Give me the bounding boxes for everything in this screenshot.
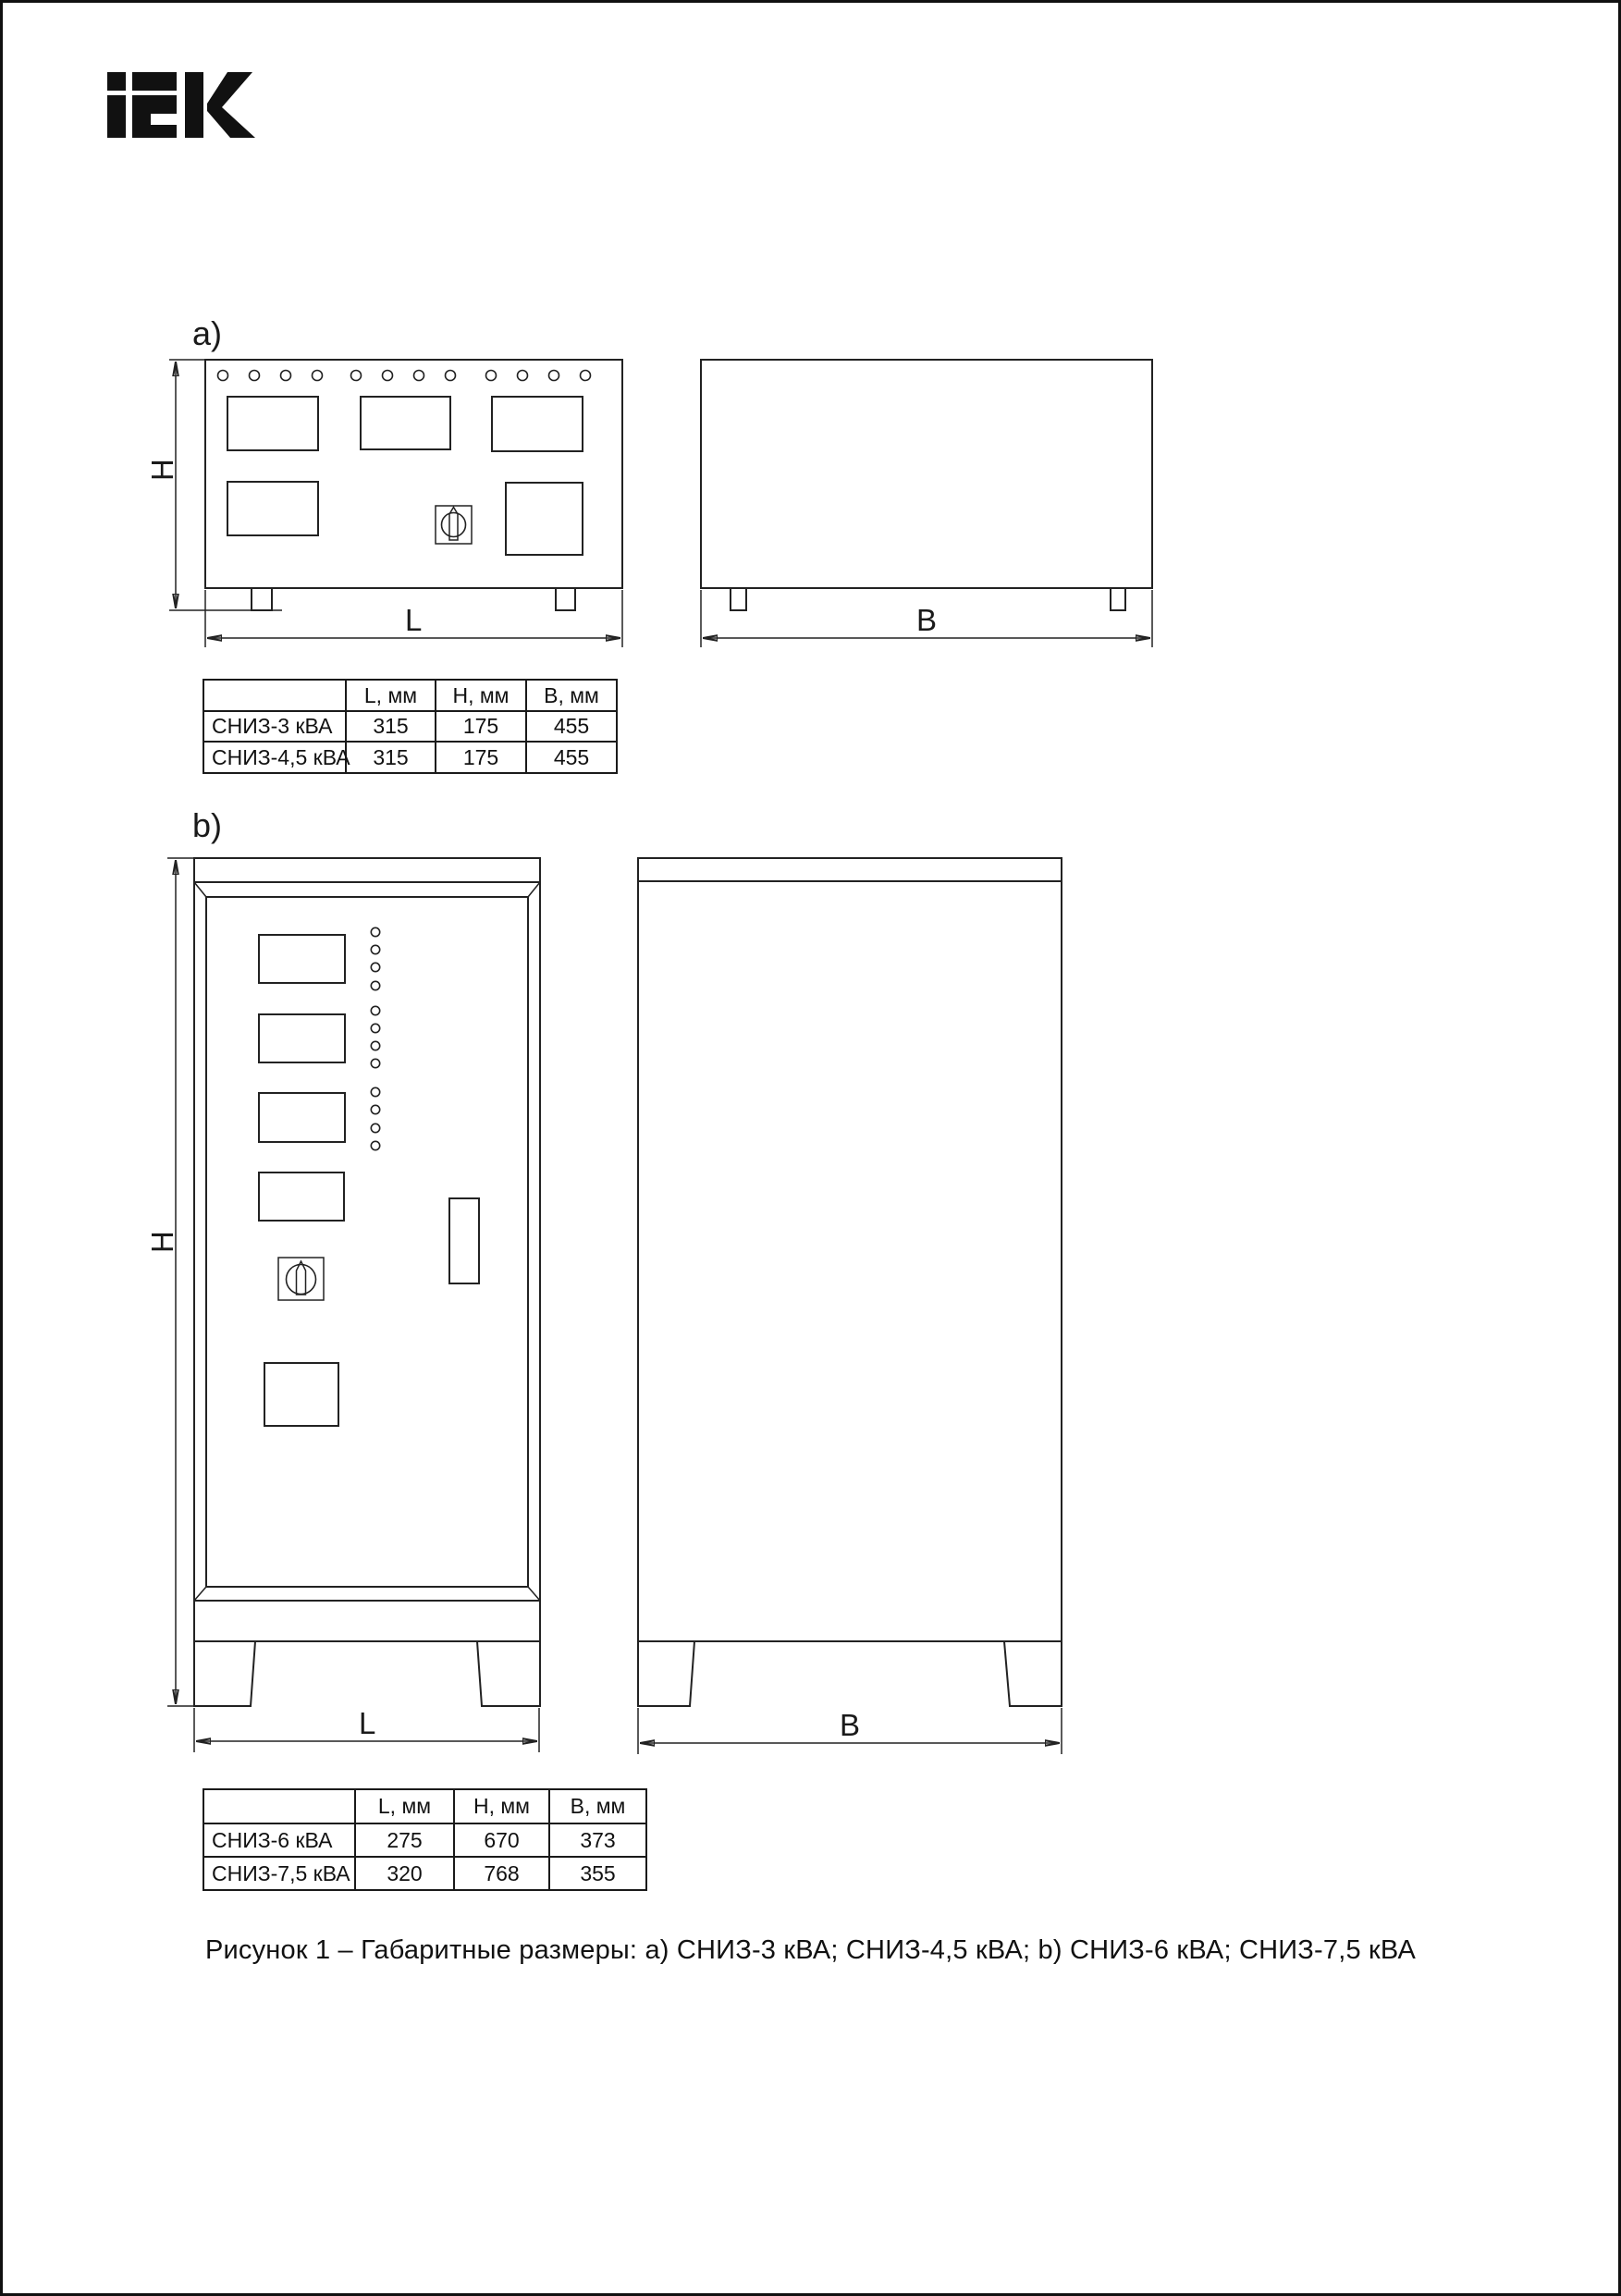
bevel-line [528, 1587, 540, 1601]
ventilation-holes [218, 371, 591, 381]
document-page: a) [0, 0, 1621, 2296]
logo-i-stem [107, 95, 126, 138]
vent-hole [414, 371, 424, 381]
iek-logo [107, 72, 278, 138]
model-cell: СНИЗ-7,5 кВА [203, 1857, 355, 1890]
vent-hole [486, 371, 497, 381]
bevel-line [528, 882, 540, 897]
header-cell: B, мм [549, 1789, 646, 1823]
logo-e-top [132, 72, 177, 91]
drawing-b: b) [141, 793, 1085, 1769]
switch-knob-pointer [297, 1261, 306, 1295]
vent-hole [371, 1105, 379, 1113]
drawing-a: a) [141, 303, 1177, 659]
value-cell: 670 [454, 1823, 549, 1857]
dim-label-h: H [145, 1231, 179, 1253]
door-handle-slot [449, 1198, 479, 1283]
switch-dial [287, 1265, 316, 1295]
front-view-a: H L [145, 360, 622, 647]
panel-window [506, 483, 583, 555]
value-cell: 373 [549, 1823, 646, 1857]
panel-window [361, 397, 450, 449]
vent-hole [371, 1123, 379, 1132]
table-row: СНИЗ-3 кВА 315 175 455 [203, 711, 617, 742]
value-cell: 315 [346, 742, 436, 773]
vent-hole [371, 1024, 379, 1032]
value-cell: 175 [436, 711, 526, 742]
vent-hole [549, 371, 559, 381]
bevel-line [194, 1587, 206, 1601]
rotary-switch [278, 1258, 324, 1300]
side-view-a: B [701, 360, 1152, 647]
dimension-l: L [205, 590, 622, 647]
vent-hole [371, 963, 379, 971]
drawing-b-label: b) [192, 806, 222, 844]
bevel-line [194, 882, 206, 897]
foot [731, 588, 746, 610]
vent-hole [250, 371, 260, 381]
vent-hole [371, 1041, 379, 1050]
side-view-b: B [638, 858, 1062, 1754]
dimensions-table-b: L, мм H, мм B, мм СНИЗ-6 кВА 275 670 373… [203, 1788, 647, 1891]
dimension-l: L [194, 1706, 539, 1752]
value-cell: 455 [526, 742, 617, 773]
model-cell: СНИЗ-3 кВА [203, 711, 346, 742]
panel-window [259, 1173, 344, 1221]
vent-hole [383, 371, 393, 381]
ventilation-holes [371, 927, 379, 1149]
foot [1111, 588, 1125, 610]
dim-label-b: B [840, 1708, 860, 1742]
dimension-b: B [638, 1708, 1062, 1754]
cabinet-front [205, 360, 622, 588]
cabinet-side [638, 858, 1062, 1641]
drawing-a-label: a) [192, 314, 222, 352]
dimensions-table-a: L, мм H, мм B, мм СНИЗ-3 кВА 315 175 455… [203, 679, 618, 774]
foot [477, 1641, 540, 1706]
dimension-h: H [145, 858, 197, 1706]
switch-dial [442, 513, 466, 537]
logo-k-stem [185, 72, 203, 138]
table-header-row: L, мм H, мм B, мм [203, 680, 617, 711]
vent-hole [313, 371, 323, 381]
dim-label-h: H [145, 459, 179, 481]
logo-e-body [132, 95, 177, 138]
vent-hole [371, 981, 379, 989]
vent-hole [371, 945, 379, 953]
table-row: СНИЗ-7,5 кВА 320 768 355 [203, 1857, 646, 1890]
header-cell: H, мм [436, 680, 526, 711]
value-cell: 355 [549, 1857, 646, 1890]
model-cell: СНИЗ-6 кВА [203, 1823, 355, 1857]
model-cell: СНИЗ-4,5 кВА [203, 742, 346, 773]
header-cell: H, мм [454, 1789, 549, 1823]
header-cell [203, 1789, 355, 1823]
panel-window [264, 1363, 338, 1426]
value-cell: 768 [454, 1857, 549, 1890]
logo-i-dot [107, 72, 126, 91]
dim-label-b: B [916, 603, 937, 637]
panel-window [259, 935, 345, 983]
vent-hole [281, 371, 291, 381]
value-cell: 275 [355, 1823, 454, 1857]
foot [1004, 1641, 1062, 1706]
panel-window [492, 397, 583, 451]
vent-hole [371, 1059, 379, 1067]
value-cell: 315 [346, 711, 436, 742]
dimension-b: B [701, 590, 1152, 647]
foot [638, 1641, 694, 1706]
foot [556, 588, 575, 610]
figure-caption: Рисунок 1 – Габаритные размеры: a) СНИЗ-… [3, 1935, 1618, 1966]
dim-label-l: L [405, 603, 422, 637]
panel-window [259, 1093, 345, 1142]
vent-hole [446, 371, 456, 381]
panel-window [227, 482, 318, 535]
table-header-row: L, мм H, мм B, мм [203, 1789, 646, 1823]
header-cell [203, 680, 346, 711]
vent-hole [371, 1087, 379, 1096]
vent-hole [371, 1141, 379, 1149]
foot [252, 588, 272, 610]
vent-hole [581, 371, 591, 381]
cabinet-front [194, 858, 540, 1641]
header-cell: B, мм [526, 680, 617, 711]
vent-hole [351, 371, 362, 381]
cabinet-side [701, 360, 1152, 588]
header-cell: L, мм [355, 1789, 454, 1823]
vent-hole [371, 927, 379, 936]
header-cell: L, мм [346, 680, 436, 711]
vent-hole [218, 371, 228, 381]
table-row: СНИЗ-4,5 кВА 315 175 455 [203, 742, 617, 773]
logo-k-arms [207, 72, 255, 138]
value-cell: 455 [526, 711, 617, 742]
value-cell: 320 [355, 1857, 454, 1890]
rotary-switch [436, 506, 472, 544]
panel-window [227, 397, 318, 450]
vent-hole [371, 1006, 379, 1014]
vent-hole [518, 371, 528, 381]
foot [194, 1641, 255, 1706]
dim-label-l: L [359, 1706, 375, 1740]
panel-window [259, 1014, 345, 1062]
value-cell: 175 [436, 742, 526, 773]
front-view-b: H L [145, 858, 540, 1752]
table-row: СНИЗ-6 кВА 275 670 373 [203, 1823, 646, 1857]
